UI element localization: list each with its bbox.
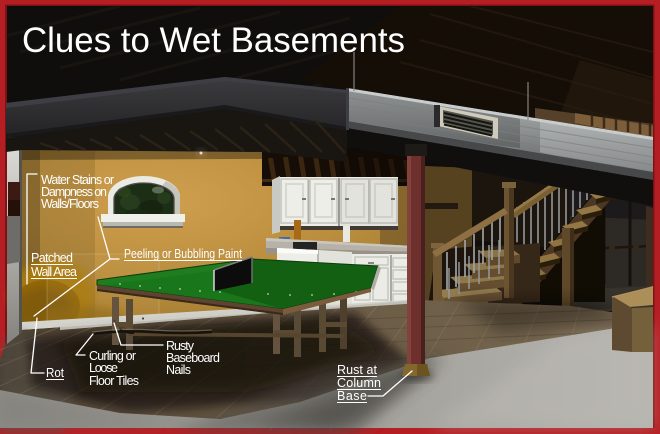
svg-text:Wall Area: Wall Area	[31, 265, 77, 279]
svg-text:Clues to Wet Basements: Clues to Wet Basements	[22, 21, 405, 60]
svg-text:Floor Tiles: Floor Tiles	[89, 374, 139, 388]
svg-text:Nails: Nails	[166, 363, 191, 377]
svg-text:Rot: Rot	[46, 366, 64, 380]
svg-text:Loose: Loose	[89, 361, 118, 375]
svg-text:Rust at: Rust at	[337, 363, 378, 377]
svg-text:Peeling or Bubbling Paint: Peeling or Bubbling Paint	[124, 247, 242, 261]
svg-text:Walls/Floors: Walls/Floors	[41, 197, 99, 211]
svg-text:Base: Base	[337, 389, 367, 403]
svg-text:Patched: Patched	[31, 251, 73, 265]
svg-text:Column: Column	[337, 376, 381, 390]
